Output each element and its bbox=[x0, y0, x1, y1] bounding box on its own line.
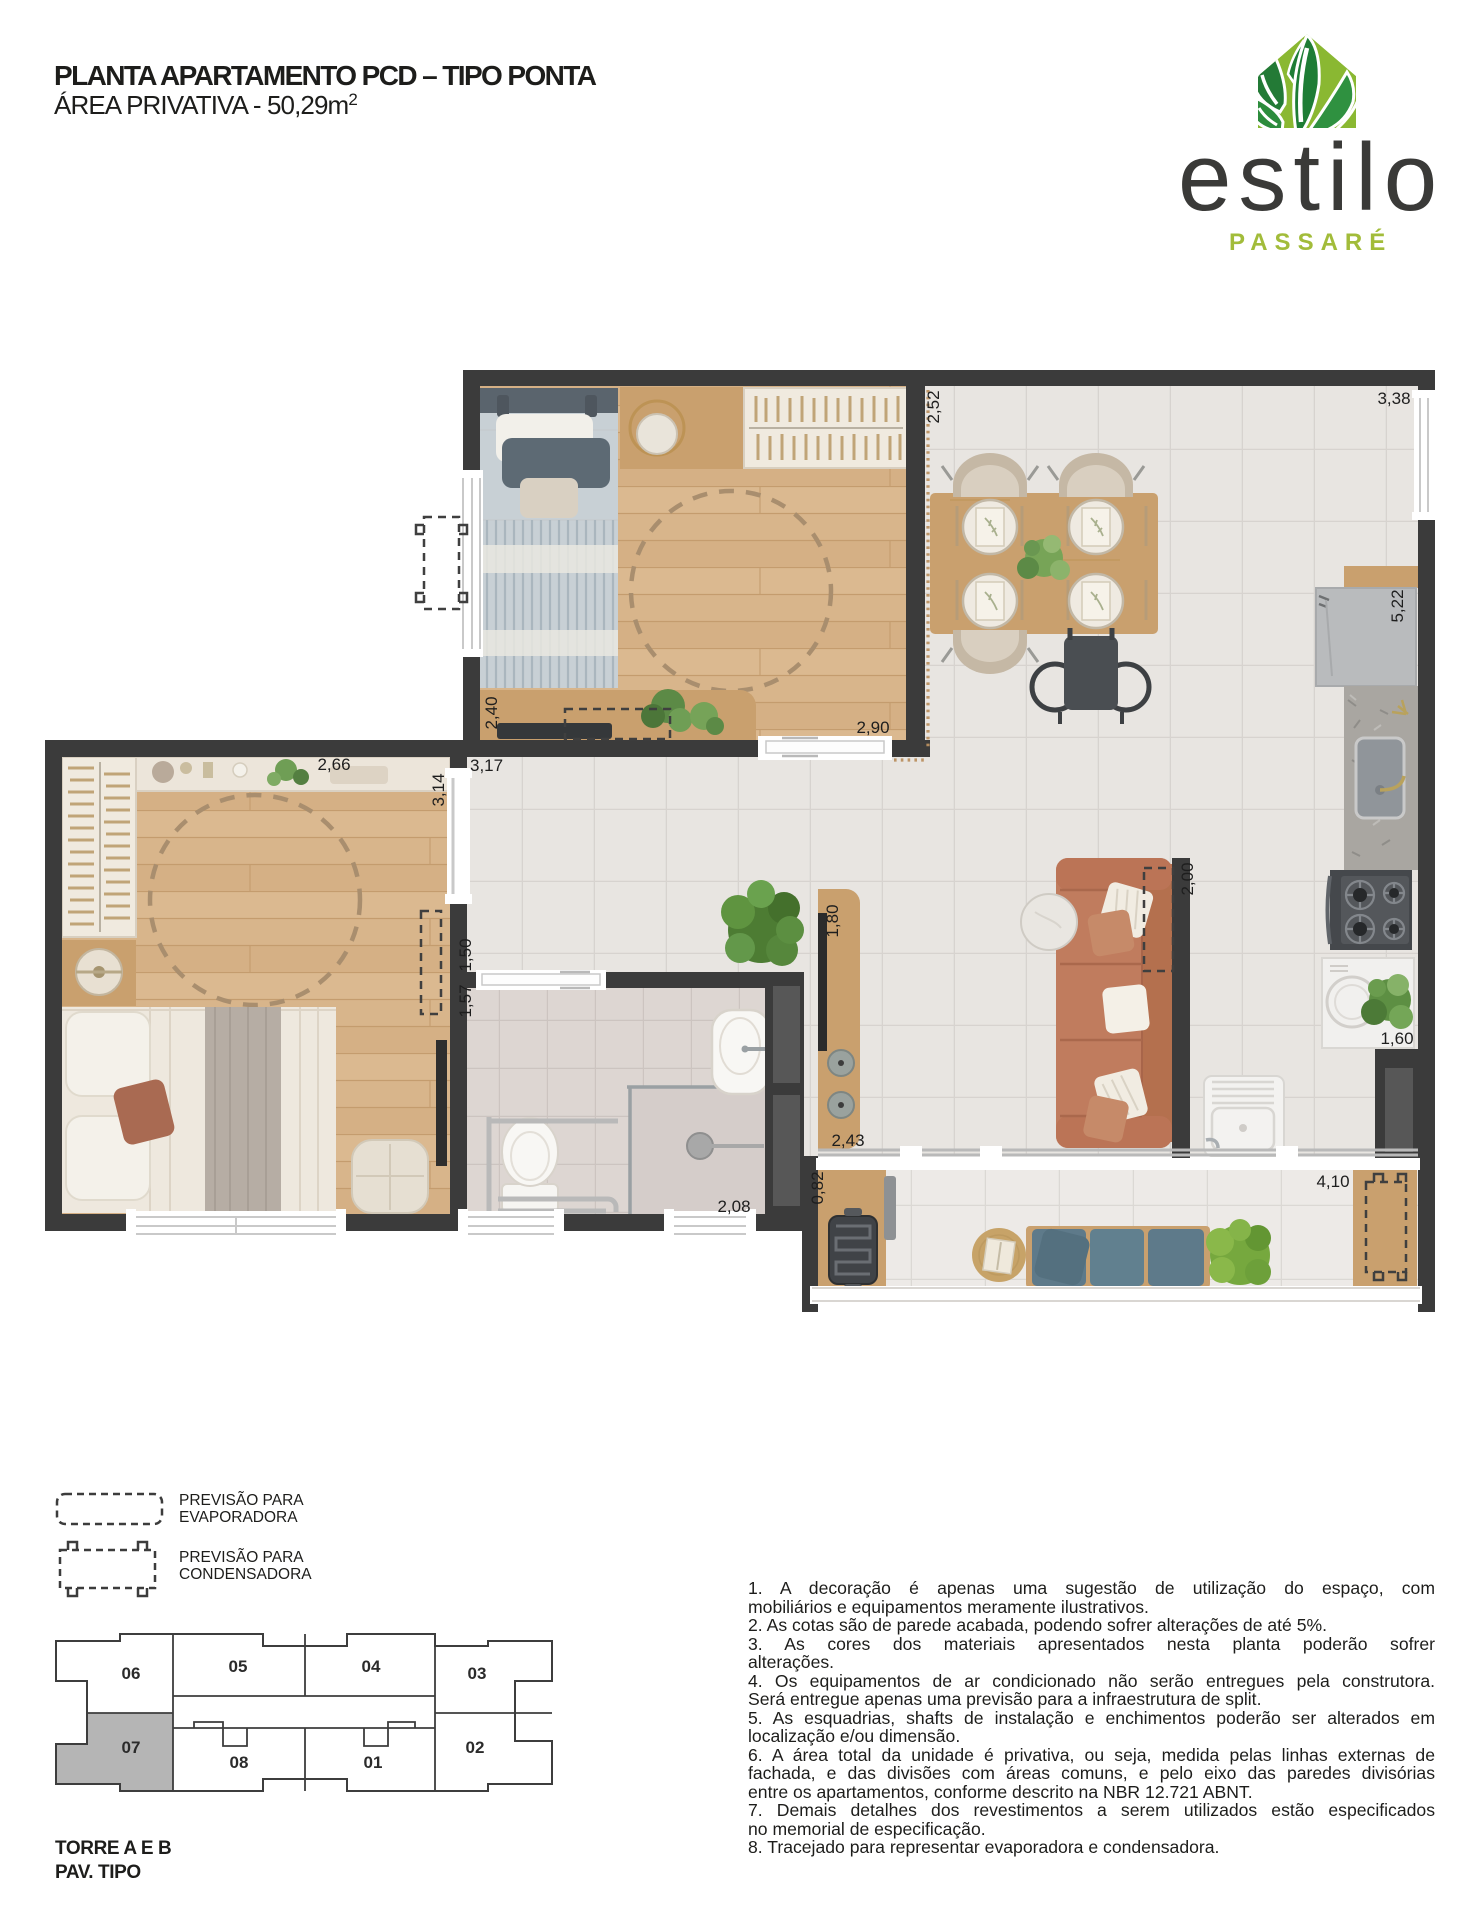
svg-text:1,60: 1,60 bbox=[1380, 1029, 1413, 1048]
svg-text:0,82: 0,82 bbox=[808, 1171, 827, 1204]
svg-text:3,17: 3,17 bbox=[470, 756, 503, 775]
svg-text:4,10: 4,10 bbox=[1316, 1172, 1349, 1191]
svg-text:2,40: 2,40 bbox=[482, 696, 501, 729]
svg-text:05: 05 bbox=[229, 1657, 248, 1676]
svg-text:5,22: 5,22 bbox=[1388, 589, 1407, 622]
svg-text:1,80: 1,80 bbox=[823, 904, 842, 937]
svg-text:01: 01 bbox=[364, 1753, 383, 1772]
svg-text:2,08: 2,08 bbox=[717, 1197, 750, 1216]
svg-text:3,38: 3,38 bbox=[1377, 389, 1410, 408]
svg-text:08: 08 bbox=[230, 1753, 249, 1772]
svg-text:04: 04 bbox=[362, 1657, 381, 1676]
svg-text:2,00: 2,00 bbox=[1178, 862, 1197, 895]
svg-text:1,57: 1,57 bbox=[456, 984, 475, 1017]
svg-text:07: 07 bbox=[122, 1738, 141, 1757]
svg-text:2,90: 2,90 bbox=[856, 718, 889, 737]
svg-text:1,50: 1,50 bbox=[456, 938, 475, 971]
svg-text:03: 03 bbox=[468, 1664, 487, 1683]
svg-text:2,52: 2,52 bbox=[924, 390, 943, 423]
svg-text:2,66: 2,66 bbox=[317, 755, 350, 774]
svg-text:02: 02 bbox=[466, 1738, 485, 1757]
svg-text:2,43: 2,43 bbox=[831, 1131, 864, 1150]
svg-text:06: 06 bbox=[122, 1664, 141, 1683]
svg-text:3,14: 3,14 bbox=[429, 773, 448, 806]
